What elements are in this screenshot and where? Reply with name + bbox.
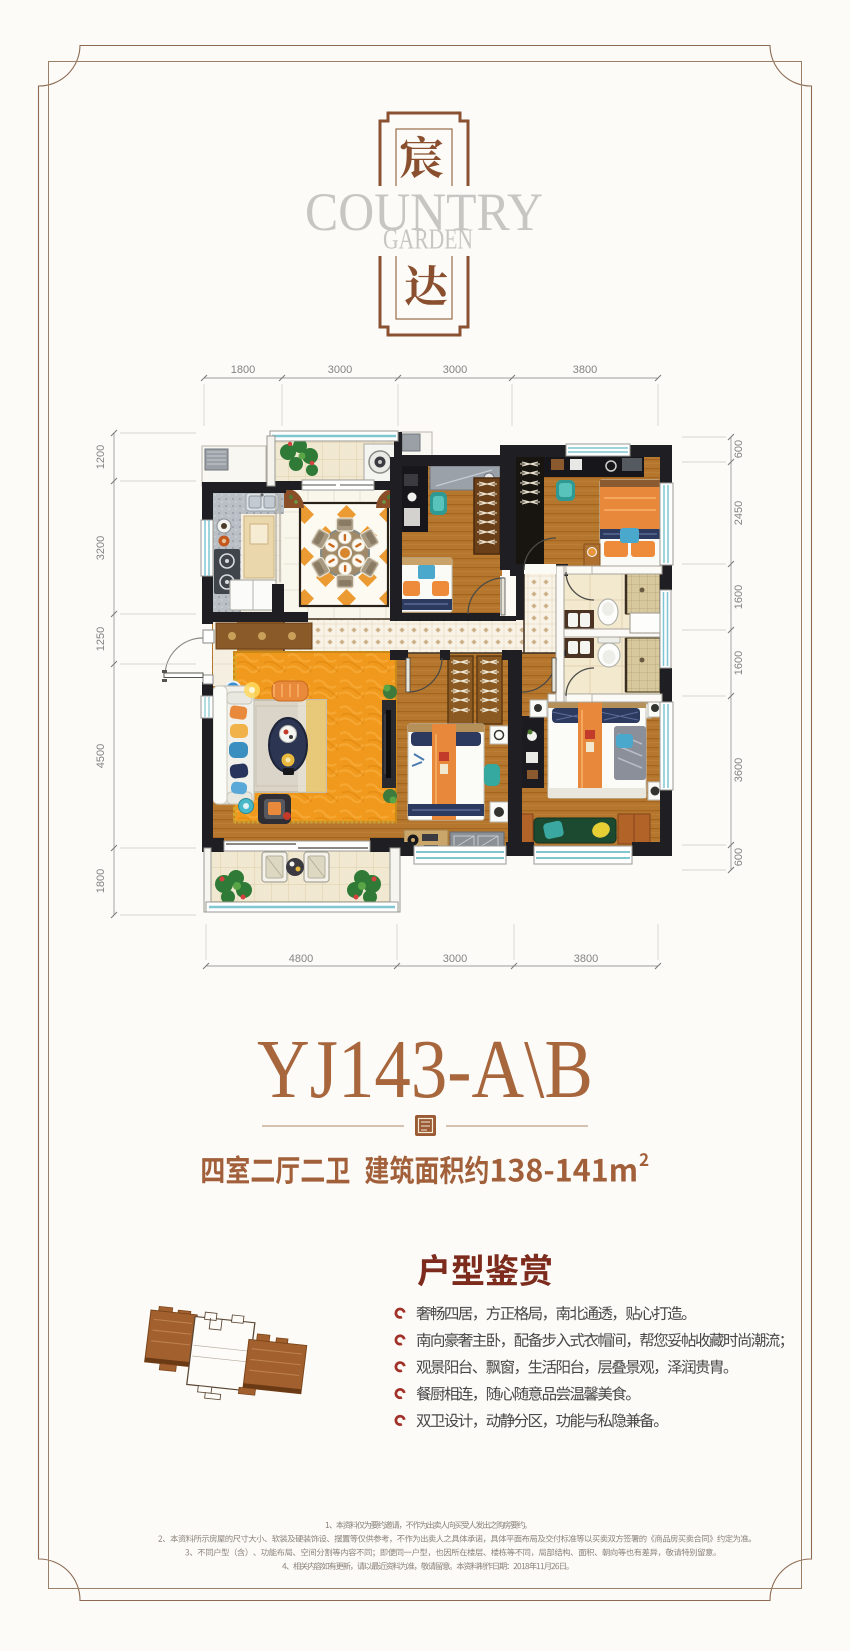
svg-text:3000: 3000 — [443, 953, 467, 965]
svg-text:600: 600 — [733, 440, 745, 458]
svg-text:1600: 1600 — [733, 585, 745, 609]
svg-text:4500: 4500 — [95, 744, 107, 768]
svg-text:600: 600 — [733, 848, 745, 866]
svg-text:3000: 3000 — [443, 364, 467, 376]
svg-text:1250: 1250 — [95, 627, 107, 651]
svg-text:2450: 2450 — [733, 501, 745, 525]
svg-text:1800: 1800 — [231, 364, 255, 376]
svg-text:1200: 1200 — [95, 445, 107, 469]
svg-text:GARDEN: GARDEN — [383, 225, 473, 256]
svg-text:3600: 3600 — [733, 758, 745, 782]
svg-text:4800: 4800 — [289, 953, 313, 965]
svg-text:1800: 1800 — [95, 869, 107, 893]
svg-text:3800: 3800 — [574, 953, 598, 965]
svg-text:1600: 1600 — [733, 651, 745, 675]
svg-text:3800: 3800 — [573, 364, 597, 376]
svg-text:3200: 3200 — [95, 536, 107, 560]
svg-text:YJ143-A\B: YJ143-A\B — [257, 1023, 593, 1116]
svg-text:3000: 3000 — [328, 364, 352, 376]
